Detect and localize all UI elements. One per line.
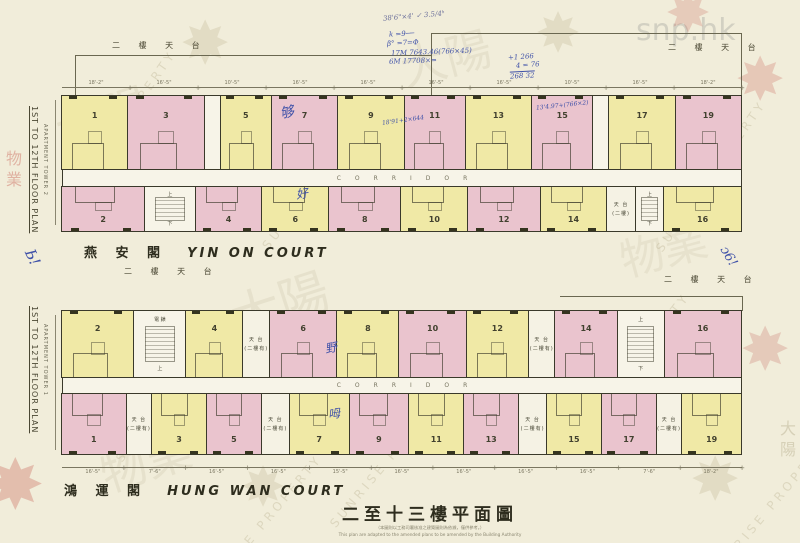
property-watermark: 大 陽 xyxy=(778,420,794,457)
terrace-label: 天 台 xyxy=(534,336,549,343)
floorplan-hung-wan-court: 2電 錶上4天 台(二樓有)681012天 台(二樓有)14上下16 CORRI… xyxy=(62,310,742,455)
unit-row-bottom: 2上下468101214天 台(二樓)上下16 xyxy=(62,186,742,232)
dimension-segment: 16'-5" xyxy=(130,78,198,88)
left-dimension-line xyxy=(55,315,56,450)
terrace-sublabel: (二樓有) xyxy=(657,425,681,432)
unit-number: 19 xyxy=(706,435,717,444)
dimension-segment: 16'-5" xyxy=(402,78,470,88)
unit-number: 16 xyxy=(697,215,708,224)
stair-label-up: 上 xyxy=(145,191,194,198)
building-name-yin-on-court: 燕 安 閣 YIN ON COURT xyxy=(84,242,329,261)
corridor: CORRIDOR xyxy=(62,170,742,186)
stairs-icon xyxy=(145,326,176,363)
roof-terrace-label: 二 樓 天 台 xyxy=(664,274,760,285)
unit-hung-wan-court-3: 3 xyxy=(151,393,207,455)
dimension-segment: 7'-6" xyxy=(618,458,680,468)
floorplan-yin-on-court: 135791113151719 CORRIDOR 2上下468101214天 台… xyxy=(62,95,742,232)
unit-number: 2 xyxy=(95,324,101,333)
dimension-label: 16'-5" xyxy=(266,80,334,86)
unit-number: 16 xyxy=(697,324,708,333)
terrace-label: 天 台 xyxy=(268,416,283,423)
unit-number: 8 xyxy=(365,324,371,333)
unit-number: 17 xyxy=(636,111,647,120)
dimension-label: 16'-5" xyxy=(62,469,124,475)
terrace-boundary-line xyxy=(560,296,743,311)
unit-number: 9 xyxy=(376,435,382,444)
dimension-segment: 16'-5" xyxy=(62,458,124,468)
unit-number: 14 xyxy=(568,215,579,224)
roof-terrace-label: 二 樓 天 台 xyxy=(124,266,220,277)
dimension-segment: 16'-5" xyxy=(606,78,674,88)
unit-yin-on-court-12: 12 xyxy=(467,186,540,232)
dimension-segment: 15'-5" xyxy=(309,458,371,468)
dimension-segment: 7'-6" xyxy=(124,458,186,468)
stair-label-up: 上 xyxy=(618,316,664,323)
unit-number: 4 xyxy=(212,324,218,333)
unit-yin-on-court-16: 16 xyxy=(663,186,742,232)
unit-hung-wan-court-12: 12 xyxy=(466,310,529,378)
terrace-label: 天 台 xyxy=(614,201,629,208)
property-watermark: 物 業 xyxy=(4,150,20,187)
terrace-sublabel: (二樓有) xyxy=(244,345,268,352)
unit-number: 7 xyxy=(302,111,308,120)
unit-number: 7 xyxy=(316,435,322,444)
terrace-cell: 天 台(二樓有) xyxy=(242,310,270,378)
dimension-label: 18'-2" xyxy=(674,80,742,86)
unit-row-top: 135791113151719 xyxy=(62,95,742,170)
unit-hung-wan-court-11: 11 xyxy=(408,393,464,455)
dimension-segment: 10'-5" xyxy=(538,78,606,88)
dimension-segment: 16'-5" xyxy=(334,78,402,88)
unit-hung-wan-court-19: 19 xyxy=(681,393,742,455)
unit-hung-wan-court-5: 5 xyxy=(206,393,262,455)
floor-range-label: 1ST TO 12TH FLOOR PLAN xyxy=(30,106,39,233)
sunburst-logo-watermark: ✸ xyxy=(740,320,790,380)
stair-core-cell: 上下 xyxy=(144,186,195,232)
stair-label-down: 上 xyxy=(134,365,185,372)
unit-hung-wan-court-15: 15 xyxy=(546,393,602,455)
dimension-label: 16'-5" xyxy=(371,469,433,475)
dimension-label: 16'-5" xyxy=(186,469,248,475)
unit-number: 5 xyxy=(231,435,237,444)
unit-number: 15 xyxy=(568,435,579,444)
unit-yin-on-court-4: 4 xyxy=(195,186,263,232)
dimension-segment: 10'-5" xyxy=(198,78,266,88)
building-name-cn: 燕 安 閣 xyxy=(84,242,167,261)
handwritten-note: 268 32 xyxy=(510,70,535,80)
unit-yin-on-court-14: 14 xyxy=(540,186,608,232)
unit-hung-wan-court-13: 13 xyxy=(463,393,519,455)
terrace-label: 天 台 xyxy=(662,416,677,423)
unit-number: 2 xyxy=(100,215,106,224)
dimension-label: 7'-6" xyxy=(618,469,680,475)
stair-label-down: 下 xyxy=(145,220,194,227)
dimension-label: 16'-5" xyxy=(247,469,309,475)
corridor: CORRIDOR xyxy=(62,378,742,393)
unit-number: 19 xyxy=(703,111,714,120)
dimension-label: 16'-5" xyxy=(433,469,495,475)
building-name-en: YIN ON COURT xyxy=(187,246,329,261)
dimension-segment: 16'-5" xyxy=(433,458,495,468)
unit-number: 6 xyxy=(293,215,299,224)
unit-number: 1 xyxy=(92,111,98,120)
dimension-label: 16'-5" xyxy=(470,80,538,86)
terrace-label: 天 台 xyxy=(249,336,264,343)
dimension-label: 15'-5" xyxy=(309,469,371,475)
handwritten-note: 野 xyxy=(324,341,338,355)
unit-yin-on-court-11: 11 xyxy=(404,95,466,170)
unit-number: 13 xyxy=(493,111,504,120)
unit-number: 17 xyxy=(623,435,634,444)
unit-number: 12 xyxy=(492,324,503,333)
building-name-hung-wan-court: 鴻 運 閣 HUNG WAN COURT xyxy=(64,480,345,499)
unit-number: 12 xyxy=(498,215,509,224)
stair-label-up: 電 錶 xyxy=(134,316,185,323)
unit-number: 3 xyxy=(163,111,169,120)
dimension-label: 16'-5" xyxy=(606,80,674,86)
unit-yin-on-court-9: 9 xyxy=(337,95,404,170)
unit-yin-on-court-5: 5 xyxy=(220,95,272,170)
handwritten-note: Ь! xyxy=(22,247,42,268)
handwritten-note: 好 xyxy=(295,187,309,201)
handwritten-note: ɔ6! xyxy=(718,244,740,268)
unit-yin-on-court-2: 2 xyxy=(61,186,145,232)
dimension-label: 18'-2" xyxy=(680,469,742,475)
dimension-label: 16'-5" xyxy=(495,469,557,475)
stair-label-down: 下 xyxy=(618,365,664,372)
unit-hung-wan-court-9: 9 xyxy=(349,393,410,455)
unit-yin-on-court-17: 17 xyxy=(608,95,675,170)
floor-range-label: 1ST TO 12TH FLOOR PLAN xyxy=(30,306,39,433)
dimension-label: 10'-5" xyxy=(538,80,606,86)
fine-print-cn: （本圖則以工務司署核准之建築圖則為依據，僅供參考。） xyxy=(303,525,558,531)
floor-plan-sheet: snp.hkSUNRISE PROPERTYSUNRISE PROPERTYSU… xyxy=(0,0,800,543)
building-name-cn: 鴻 運 閣 xyxy=(64,480,147,499)
unit-hung-wan-court-1: 1 xyxy=(61,393,127,455)
unit-number: 11 xyxy=(431,435,442,444)
apartment-tower-label: APARTMENT TOWER 2 xyxy=(42,124,48,233)
corridor-label: CORRIDOR xyxy=(323,175,482,182)
handwritten-note: β° =7=Φ xyxy=(387,39,419,48)
terrace-sublabel: (二樓) xyxy=(612,210,630,217)
left-dimension-line xyxy=(55,100,56,225)
corridor-label: CORRIDOR xyxy=(323,382,482,389)
lightwell-cell xyxy=(592,95,609,170)
dimension-segment: 16'-5" xyxy=(186,458,248,468)
handwritten-note: k =9── xyxy=(389,30,415,38)
terrace-label: 天 台 xyxy=(132,416,147,423)
unit-number: 10 xyxy=(427,324,438,333)
stair-core-cell: 上下 xyxy=(617,310,665,378)
stair-core-cell: 電 錶上 xyxy=(133,310,186,378)
unit-number: 13 xyxy=(486,435,497,444)
stairs-icon xyxy=(641,197,657,222)
dimension-segment: 18'-2" xyxy=(62,78,130,88)
terrace-sublabel: (二樓有) xyxy=(521,425,545,432)
roof-terrace-label: 二 樓 天 台 xyxy=(668,42,764,53)
dimension-segment: 16'-5" xyxy=(266,78,334,88)
unit-yin-on-court-13: 13 xyxy=(465,95,532,170)
dimension-segment: 16'-5" xyxy=(371,458,433,468)
unit-row-top: 2電 錶上4天 台(二樓有)681012天 台(二樓有)14上下16 xyxy=(62,310,742,378)
unit-number: 5 xyxy=(243,111,249,120)
unit-number: 14 xyxy=(580,324,591,333)
handwritten-note: 38'6"×4' ✓ 3.5/4ʰ xyxy=(383,10,445,22)
stair-label-down: 下 xyxy=(636,220,663,227)
unit-yin-on-court-19: 19 xyxy=(675,95,742,170)
unit-number: 10 xyxy=(429,215,440,224)
side-floor-plan-label: 1ST TO 12TH FLOOR PLAN APARTMENT TOWER 2 xyxy=(30,106,48,233)
terrace-cell: 天 台(二樓有) xyxy=(528,310,556,378)
terrace-sublabel: (二樓有) xyxy=(530,345,554,352)
dimension-segment: 18'-2" xyxy=(680,458,742,468)
unit-yin-on-court-1: 1 xyxy=(61,95,128,170)
unit-number: 8 xyxy=(362,215,368,224)
stairs-icon xyxy=(155,197,185,222)
handwritten-note: 呣 xyxy=(327,407,341,421)
unit-number: 1 xyxy=(91,435,97,444)
floor-range-title: 二至十三樓平面圖 xyxy=(280,500,580,525)
terrace-cell: 天 台(二樓有) xyxy=(518,393,547,455)
unit-hung-wan-court-17: 17 xyxy=(601,393,657,455)
sunburst-logo-watermark: ✸ xyxy=(0,450,45,520)
unit-hung-wan-court-2: 2 xyxy=(61,310,134,378)
handwritten-note: 够 xyxy=(279,105,296,122)
dimension-string-bottom: 16'-5"7'-6"16'-5"16'-5"15'-5"16'-5"16'-5… xyxy=(62,458,742,468)
terrace-sublabel: (二樓有) xyxy=(263,425,287,432)
terrace-label: 天 台 xyxy=(525,416,540,423)
unit-number: 9 xyxy=(368,111,374,120)
stairs-icon xyxy=(627,326,655,363)
dimension-label: 16'-5" xyxy=(557,469,619,475)
dimension-label: 10'-5" xyxy=(198,80,266,86)
unit-yin-on-court-8: 8 xyxy=(328,186,401,232)
terrace-cell: 天 台(二樓有) xyxy=(261,393,290,455)
terrace-cell: 天 台(二樓有) xyxy=(656,393,682,455)
terrace-sublabel: (二樓有) xyxy=(127,425,151,432)
dimension-string-top: 18'-2"16'-5"10'-5"16'-5"16'-5"16'-5"16'-… xyxy=(62,78,742,88)
dimension-segment: 16'-5" xyxy=(247,458,309,468)
stair-label-up: 上 xyxy=(636,191,663,198)
dimension-label: 7'-6" xyxy=(124,469,186,475)
dimension-label: 18'-2" xyxy=(62,80,130,86)
dimension-label: 16'-5" xyxy=(334,80,402,86)
side-floor-plan-label: 1ST TO 12TH FLOOR PLAN APARTMENT TOWER 1 xyxy=(30,306,48,433)
unit-number: 6 xyxy=(300,324,306,333)
unit-hung-wan-court-4: 4 xyxy=(185,310,243,378)
dimension-label: 16'-5" xyxy=(130,80,198,86)
unit-hung-wan-court-14: 14 xyxy=(554,310,617,378)
unit-hung-wan-court-8: 8 xyxy=(336,310,399,378)
dimension-label: 16'-5" xyxy=(402,80,470,86)
unit-number: 4 xyxy=(226,215,232,224)
unit-hung-wan-court-10: 10 xyxy=(398,310,466,378)
lightwell-cell xyxy=(204,95,221,170)
apartment-tower-label: APARTMENT TOWER 1 xyxy=(42,324,48,433)
dimension-segment: 18'-2" xyxy=(674,78,742,88)
dimension-segment: 16'-5" xyxy=(557,458,619,468)
unit-row-bottom: 1天 台(二樓有)35天 台(二樓有)791113天 台(二樓有)1517天 台… xyxy=(62,393,742,455)
fine-print-en: This plan are adapted to the amended pla… xyxy=(303,532,558,538)
unit-hung-wan-court-7: 7 xyxy=(289,393,350,455)
building-name-en: HUNG WAN COURT xyxy=(167,484,345,499)
dimension-segment: 16'-5" xyxy=(495,458,557,468)
unit-hung-wan-court-16: 16 xyxy=(664,310,742,378)
roof-terrace-label: 二 樓 天 台 xyxy=(112,40,208,51)
sunburst-logo-watermark: ✸ xyxy=(735,50,785,110)
sheet-caption: 二至十三樓平面圖 （本圖則以工務司署核准之建築圖則為依據，僅供參考。） This… xyxy=(280,500,580,538)
unit-number: 15 xyxy=(557,111,568,120)
unit-number: 3 xyxy=(176,435,182,444)
unit-yin-on-court-3: 3 xyxy=(127,95,204,170)
stair-core-cell: 上下 xyxy=(635,186,664,232)
unit-number: 11 xyxy=(429,111,440,120)
terrace-cell: 天 台(二樓) xyxy=(606,186,635,232)
terrace-cell: 天 台(二樓有) xyxy=(126,393,152,455)
unit-yin-on-court-10: 10 xyxy=(400,186,468,232)
